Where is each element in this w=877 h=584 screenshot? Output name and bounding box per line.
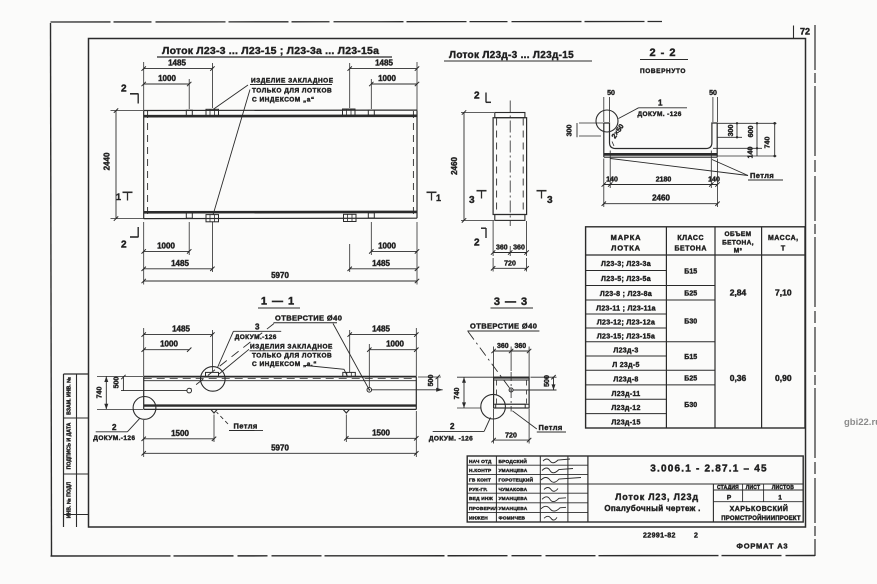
- svg-text:500: 500: [114, 377, 121, 389]
- svg-text:1000: 1000: [160, 340, 178, 349]
- svg-text:7,10: 7,10: [775, 288, 792, 298]
- svg-text:500: 500: [428, 375, 435, 387]
- svg-text:2: 2: [474, 91, 480, 102]
- svg-text:ДОКУМ.-126: ДОКУМ.-126: [93, 435, 135, 442]
- svg-text:ОТВЕРСТИЕ Ø40: ОТВЕРСТИЕ Ø40: [470, 322, 537, 331]
- svg-text:360: 360: [496, 245, 508, 252]
- svg-text:БЕТОНА,: БЕТОНА,: [722, 240, 754, 247]
- svg-text:500: 500: [544, 375, 551, 387]
- svg-text:1485: 1485: [372, 325, 390, 334]
- svg-text:Петля: Петля: [750, 171, 774, 180]
- svg-text:ФОМИЧЕВ: ФОМИЧЕВ: [499, 515, 526, 521]
- svg-text:ДОКУМ.-126: ДОКУМ.-126: [235, 334, 277, 341]
- svg-text:Л23д-11: Л23д-11: [612, 391, 641, 398]
- svg-text:72: 72: [800, 27, 810, 37]
- svg-text:720: 720: [504, 261, 516, 268]
- svg-text:3: 3: [547, 195, 553, 206]
- svg-text:Б25: Б25: [684, 291, 697, 298]
- svg-text:Л23-12; Л23-12а: Л23-12; Л23-12а: [597, 320, 655, 327]
- svg-text:Л23-5; Л23-5а: Л23-5; Л23-5а: [601, 276, 651, 283]
- svg-text:2: 2: [121, 84, 127, 95]
- svg-text:ЛИСТ: ЛИСТ: [746, 485, 760, 491]
- svg-text:1: 1: [658, 99, 663, 108]
- svg-text:Б30: Б30: [684, 319, 697, 326]
- svg-text:1: 1: [778, 495, 782, 502]
- svg-text:2: 2: [450, 422, 455, 431]
- svg-text:2,84: 2,84: [730, 288, 747, 298]
- svg-text:1000: 1000: [386, 340, 404, 349]
- svg-text:ФОРМАТ А3: ФОРМАТ А3: [737, 542, 789, 551]
- svg-text:ТОЛЬКО ДЛЯ ЛОТКОВ: ТОЛЬКО ДЛЯ ЛОТКОВ: [252, 88, 332, 95]
- svg-text:ЧУМАКОВА: ЧУМАКОВА: [499, 487, 528, 493]
- svg-text:ИНЖЕН: ИНЖЕН: [469, 515, 488, 521]
- svg-text:Лоток Л23-3 ... Л23-15 ; Л23: Лоток Л23-3 ... Л23-15 ; Л23-3а ... Л23-…: [162, 45, 379, 57]
- svg-text:3: 3: [469, 195, 475, 206]
- svg-text:5970: 5970: [271, 271, 289, 280]
- svg-text:ИЗДЕЛИЕ ЗАКЛАДНОЕ: ИЗДЕЛИЕ ЗАКЛАДНОЕ: [251, 78, 334, 85]
- svg-text:Б15: Б15: [684, 269, 697, 276]
- svg-text:360: 360: [513, 245, 525, 252]
- svg-text:Б25: Б25: [684, 376, 697, 383]
- svg-text:ИНВ. № ПОДЛ: ИНВ. № ПОДЛ: [67, 481, 73, 518]
- svg-text:ИЗДЕЛИЯ ЗАКЛАДНОЕ: ИЗДЕЛИЯ ЗАКЛАДНОЕ: [250, 344, 333, 351]
- svg-text:Л23д-12: Л23д-12: [611, 405, 640, 412]
- svg-text:2: 2: [112, 423, 117, 432]
- svg-text:Петля: Петля: [539, 423, 563, 432]
- svg-text:Лоток Л23д-3 ... Л23д-15: Лоток Л23д-3 ... Л23д-15: [449, 50, 574, 61]
- svg-text:ПРОМСТРОЙНИИПРОЕКТ: ПРОМСТРОЙНИИПРОЕКТ: [721, 514, 801, 522]
- svg-text:1500: 1500: [171, 429, 189, 438]
- svg-text:720: 720: [505, 432, 517, 439]
- svg-text:Л23д-8: Л23д-8: [613, 377, 638, 384]
- svg-text:0,90: 0,90: [775, 373, 792, 383]
- svg-text:2 - 2: 2 - 2: [649, 47, 676, 59]
- svg-text:Б30: Б30: [684, 402, 697, 409]
- svg-text:1000: 1000: [158, 74, 176, 83]
- svg-text:Л 23д-5: Л 23д-5: [612, 362, 639, 369]
- svg-text:740: 740: [765, 137, 772, 149]
- svg-text:300: 300: [728, 125, 735, 137]
- svg-text:М³: М³: [734, 248, 743, 255]
- svg-text:2180: 2180: [656, 177, 672, 184]
- svg-text:Опалубочный чертеж .: Опалубочный чертеж .: [604, 504, 700, 513]
- svg-text:Лоток Л23, Л23д: Лоток Л23, Л23д: [615, 492, 699, 502]
- svg-text:ЛИСТОВ: ЛИСТОВ: [772, 485, 794, 491]
- svg-text:3.006.1 - 2.87.1 – 45: 3.006.1 - 2.87.1 – 45: [650, 464, 768, 475]
- svg-text:РУК-ГР.: РУК-ГР.: [469, 487, 488, 493]
- svg-text:1485: 1485: [375, 59, 393, 68]
- svg-text:2: 2: [474, 238, 480, 249]
- svg-text:Р: Р: [727, 495, 732, 502]
- svg-text:22991-82: 22991-82: [643, 533, 676, 540]
- svg-text:Л23д-15: Л23д-15: [611, 420, 640, 427]
- svg-text:360: 360: [514, 343, 526, 350]
- svg-text:Л23-3; Л23-3а: Л23-3; Л23-3а: [601, 261, 651, 268]
- svg-text:1000: 1000: [378, 74, 396, 83]
- svg-text:50: 50: [607, 90, 615, 97]
- svg-text:360: 360: [497, 343, 509, 350]
- svg-text:Петля: Петля: [234, 422, 258, 431]
- svg-text:300: 300: [567, 125, 574, 137]
- svg-text:ОБЪЕМ: ОБЪЕМ: [725, 231, 752, 238]
- svg-text:С ИНДЕКСОМ „а“: С ИНДЕКСОМ „а“: [252, 97, 315, 104]
- svg-text:Б15: Б15: [684, 354, 697, 361]
- svg-text:1: 1: [436, 193, 441, 203]
- svg-text:1500: 1500: [372, 428, 390, 437]
- svg-text:ВЗАМ. ИНВ. №: ВЗАМ. ИНВ. №: [67, 377, 73, 415]
- svg-text:Н.КОНТР: Н.КОНТР: [469, 468, 492, 474]
- svg-text:1000: 1000: [157, 242, 175, 251]
- svg-text:740: 740: [96, 387, 103, 399]
- svg-text:50: 50: [709, 90, 717, 97]
- svg-text:1: 1: [116, 192, 121, 202]
- svg-text:ПОВЕРНУТО: ПОВЕРНУТО: [640, 68, 686, 75]
- svg-text:ГВ КОНТ: ГВ КОНТ: [469, 477, 491, 483]
- svg-text:ТОЛЬКО ДЛЯ ЛОТКОВ: ТОЛЬКО ДЛЯ ЛОТКОВ: [252, 353, 332, 360]
- svg-text:КЛАСС: КЛАСС: [677, 235, 704, 242]
- svg-text:БЕТОНА: БЕТОНА: [675, 246, 707, 253]
- svg-text:2: 2: [694, 533, 698, 540]
- svg-text:ДОКУМ. -126: ДОКУМ. -126: [638, 111, 682, 118]
- svg-text:1000: 1000: [378, 242, 396, 251]
- svg-text:1485: 1485: [171, 259, 189, 268]
- svg-text:1485: 1485: [168, 59, 186, 68]
- svg-text:0,36: 0,36: [730, 373, 747, 383]
- svg-text:740: 740: [454, 388, 461, 400]
- svg-text:gbi22.ru: gbi22.ru: [844, 417, 877, 428]
- svg-text:ПРОВЕРИЛ: ПРОВЕРИЛ: [469, 506, 498, 512]
- svg-text:ОТВЕРСТИЕ Ø40: ОТВЕРСТИЕ Ø40: [275, 314, 342, 323]
- svg-text:Л23д-3: Л23д-3: [613, 348, 638, 355]
- svg-text:3 — 3: 3 — 3: [494, 296, 528, 308]
- svg-text:С ИНДЕКСОМ „а.“: С ИНДЕКСОМ „а.“: [252, 361, 317, 368]
- svg-text:2: 2: [121, 240, 127, 251]
- svg-text:2440: 2440: [103, 152, 112, 170]
- svg-text:МАССА,: МАССА,: [768, 235, 799, 242]
- svg-text:Л23-15; Л23-15а: Л23-15; Л23-15а: [597, 333, 655, 340]
- svg-text:НАЧ ОТД: НАЧ ОТД: [469, 459, 492, 465]
- svg-text:140: 140: [748, 147, 755, 159]
- svg-text:140: 140: [708, 177, 720, 184]
- svg-text:УМАНЦЕВА: УМАНЦЕВА: [499, 496, 528, 502]
- svg-text:УМАНЦЕВА: УМАНЦЕВА: [499, 468, 528, 474]
- svg-text:600: 600: [748, 126, 755, 138]
- svg-text:2460: 2460: [652, 194, 670, 203]
- svg-text:УМАНЦЕВА: УМАНЦЕВА: [499, 506, 528, 512]
- svg-text:СТАДИЯ: СТАДИЯ: [717, 485, 739, 491]
- svg-text:ВЕД ИНЖ: ВЕД ИНЖ: [469, 496, 494, 502]
- svg-text:ХАРЬКОВСКИЙ: ХАРЬКОВСКИЙ: [730, 504, 789, 513]
- svg-text:Л23-11 ; Л23-11а: Л23-11 ; Л23-11а: [596, 306, 656, 313]
- svg-text:3: 3: [255, 323, 260, 332]
- svg-text:1 — 1: 1 — 1: [261, 296, 295, 308]
- svg-text:1485: 1485: [372, 259, 390, 268]
- svg-text:ДОКУМ. -126: ДОКУМ. -126: [429, 436, 473, 443]
- svg-text:ЛОТКА: ЛОТКА: [611, 244, 641, 253]
- svg-text:2460: 2460: [450, 157, 459, 175]
- svg-text:Т: Т: [781, 246, 786, 253]
- svg-text:ПОДПИСЬ И ДАТА: ПОДПИСЬ И ДАТА: [67, 422, 73, 469]
- svg-text:Л23-8 ; Л23-8а: Л23-8 ; Л23-8а: [600, 291, 652, 298]
- svg-text:МАРКА: МАРКА: [611, 233, 642, 242]
- svg-text:5970: 5970: [271, 443, 289, 452]
- svg-text:1485: 1485: [172, 325, 190, 334]
